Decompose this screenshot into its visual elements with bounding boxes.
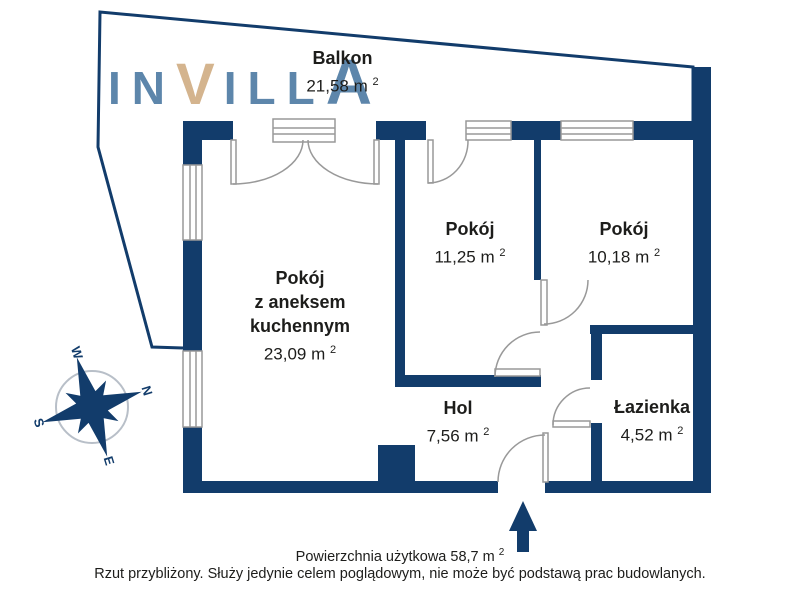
door-room1 [495, 332, 540, 377]
label-room2: Pokój 10,18 m 2 [544, 217, 704, 270]
area-sup: 2 [373, 76, 379, 88]
wall-top-pier-2 [511, 121, 561, 140]
wall-bath-top [590, 325, 693, 334]
wall-bath-left-upper [591, 333, 602, 380]
wall-bottom-left [183, 481, 498, 493]
wall-room1-bottom [395, 375, 541, 387]
area-sup: 2 [499, 547, 505, 558]
label-hol: Hol 7,56 m 2 [378, 396, 538, 449]
compass-w: W [68, 345, 86, 362]
wall-top-pier-3 [633, 121, 693, 140]
room-name: kuchennym [210, 314, 390, 338]
area-sup: 2 [499, 247, 505, 259]
wall-bottom-right [545, 481, 711, 493]
label-bathroom: Łazienka 4,52 m 2 [572, 395, 732, 448]
area-sup: 2 [677, 425, 683, 437]
logo-letter: I [224, 65, 237, 111]
window-top-room2 [561, 121, 633, 140]
total-area-line: Powierzchnia użytkowa 58,7 m 2 [0, 547, 800, 565]
room-area: 21,58 m [306, 77, 367, 96]
compass-s: S [31, 416, 48, 429]
window-top-room1 [466, 121, 511, 140]
label-balkon: Balkon 21,58 m 2 [260, 46, 425, 99]
shaft-block [378, 445, 415, 482]
room-area: 23,09 m [264, 345, 325, 364]
compass-rose-icon: N S E W [27, 342, 157, 472]
logo-letter: N [132, 65, 165, 111]
room-name: Pokój [390, 217, 550, 241]
floor-plan: N S E W I N V I L L A Balkon 21,58 m 2 P… [0, 0, 800, 600]
wall-top-corner [183, 121, 233, 140]
logo-letter-v: V [176, 56, 215, 114]
window-left-upper [183, 165, 202, 240]
wall-left-mid [183, 240, 202, 351]
room-name: Balkon [260, 46, 425, 70]
window-left-lower [183, 351, 202, 427]
area-sup: 2 [330, 344, 336, 356]
room-name: Pokój [544, 217, 704, 241]
compass-e: E [101, 454, 118, 467]
disclaimer-text: Rzut przybliżony. Służy jedynie celem po… [94, 566, 705, 582]
room-name: Hol [378, 396, 538, 420]
room-area: 7,56 m [427, 427, 479, 446]
label-living-room: Pokój z aneksem kuchennym 23,09 m 2 [210, 266, 390, 367]
window-balcony-center [273, 119, 335, 142]
label-room1: Pokój 11,25 m 2 [390, 217, 550, 270]
room-name: Pokój [210, 266, 390, 290]
compass-n: N [138, 384, 155, 397]
room-name: Łazienka [572, 395, 732, 419]
balcony-door-room1 [428, 140, 468, 183]
room-area: 4,52 m [621, 426, 673, 445]
total-area-text: Powierzchnia użytkowa 58,7 m [296, 549, 495, 565]
room-name: z aneksem [210, 290, 390, 314]
room-area: 10,18 m [588, 248, 649, 267]
area-sup: 2 [654, 247, 660, 259]
disclaimer-line: Rzut przybliżony. Służy jedynie celem po… [0, 566, 800, 582]
wall-top-pier-1 [376, 121, 426, 140]
area-sup: 2 [483, 426, 489, 438]
entrance-arrow-icon [509, 501, 537, 552]
door-room2 [541, 280, 588, 325]
balcony-french-door [231, 140, 379, 184]
room-area: 11,25 m [434, 248, 494, 267]
logo-letter: I [108, 65, 121, 111]
